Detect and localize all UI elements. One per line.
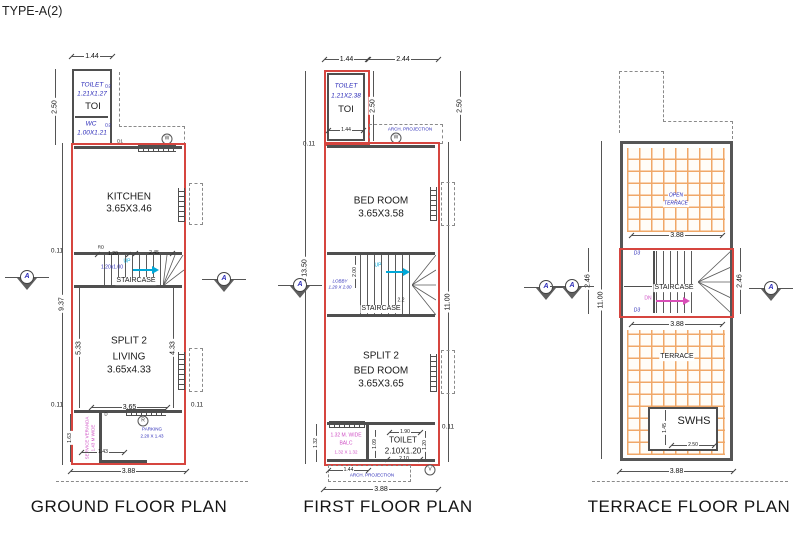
- floor-plan-drawing: TYPE-A(2) 1.44 2.50 TOILET 1.21X1.27 TOI…: [0, 0, 800, 535]
- terrace-floor-title: TERRACE FLOOR PLAN: [588, 497, 791, 517]
- staircase-label: STAIRCASE: [653, 284, 694, 292]
- swhs-label: SWHS: [678, 415, 711, 427]
- dim-width-top: 3.88: [632, 231, 722, 240]
- stair-winder: [698, 251, 731, 313]
- plot-boundary-dashed: [592, 481, 788, 482]
- wall: [653, 251, 655, 313]
- dim-swhs-width: 2.50: [672, 441, 714, 449]
- projection-dashed-line: [619, 71, 664, 72]
- dim-swhs-height: 1.45: [660, 410, 670, 445]
- projection-dashed-line: [663, 71, 664, 122]
- terrace-label: TERRACE: [659, 353, 694, 361]
- section-marker-a: A: [550, 277, 594, 301]
- dim-width-mid: 3.88: [632, 320, 722, 329]
- landing-line: [624, 286, 652, 287]
- door-d3-label: D3: [633, 308, 641, 314]
- dn-arrow: [656, 300, 684, 302]
- open-terrace-tiles: [627, 148, 725, 232]
- projection-dashed-line: [619, 71, 620, 133]
- dim-stair-right: 2.46: [735, 248, 745, 314]
- section-marker-a: A: [749, 279, 793, 303]
- dn-label: DN: [644, 296, 651, 302]
- terrace-floor-plan: OPEN TERRACE 3.88 STAIRCASE DN D3 D3 2.4…: [0, 0, 800, 535]
- staircase-treads: [656, 251, 698, 313]
- open-terrace-label2: TERRACE: [663, 201, 689, 207]
- projection-dashed-line: [663, 121, 733, 122]
- open-terrace-label: OPEN: [668, 193, 684, 199]
- dim-total-left: 11.00: [596, 141, 606, 459]
- dim-total-bottom: 3.88: [620, 467, 733, 476]
- door-d3-label: D3: [633, 251, 641, 257]
